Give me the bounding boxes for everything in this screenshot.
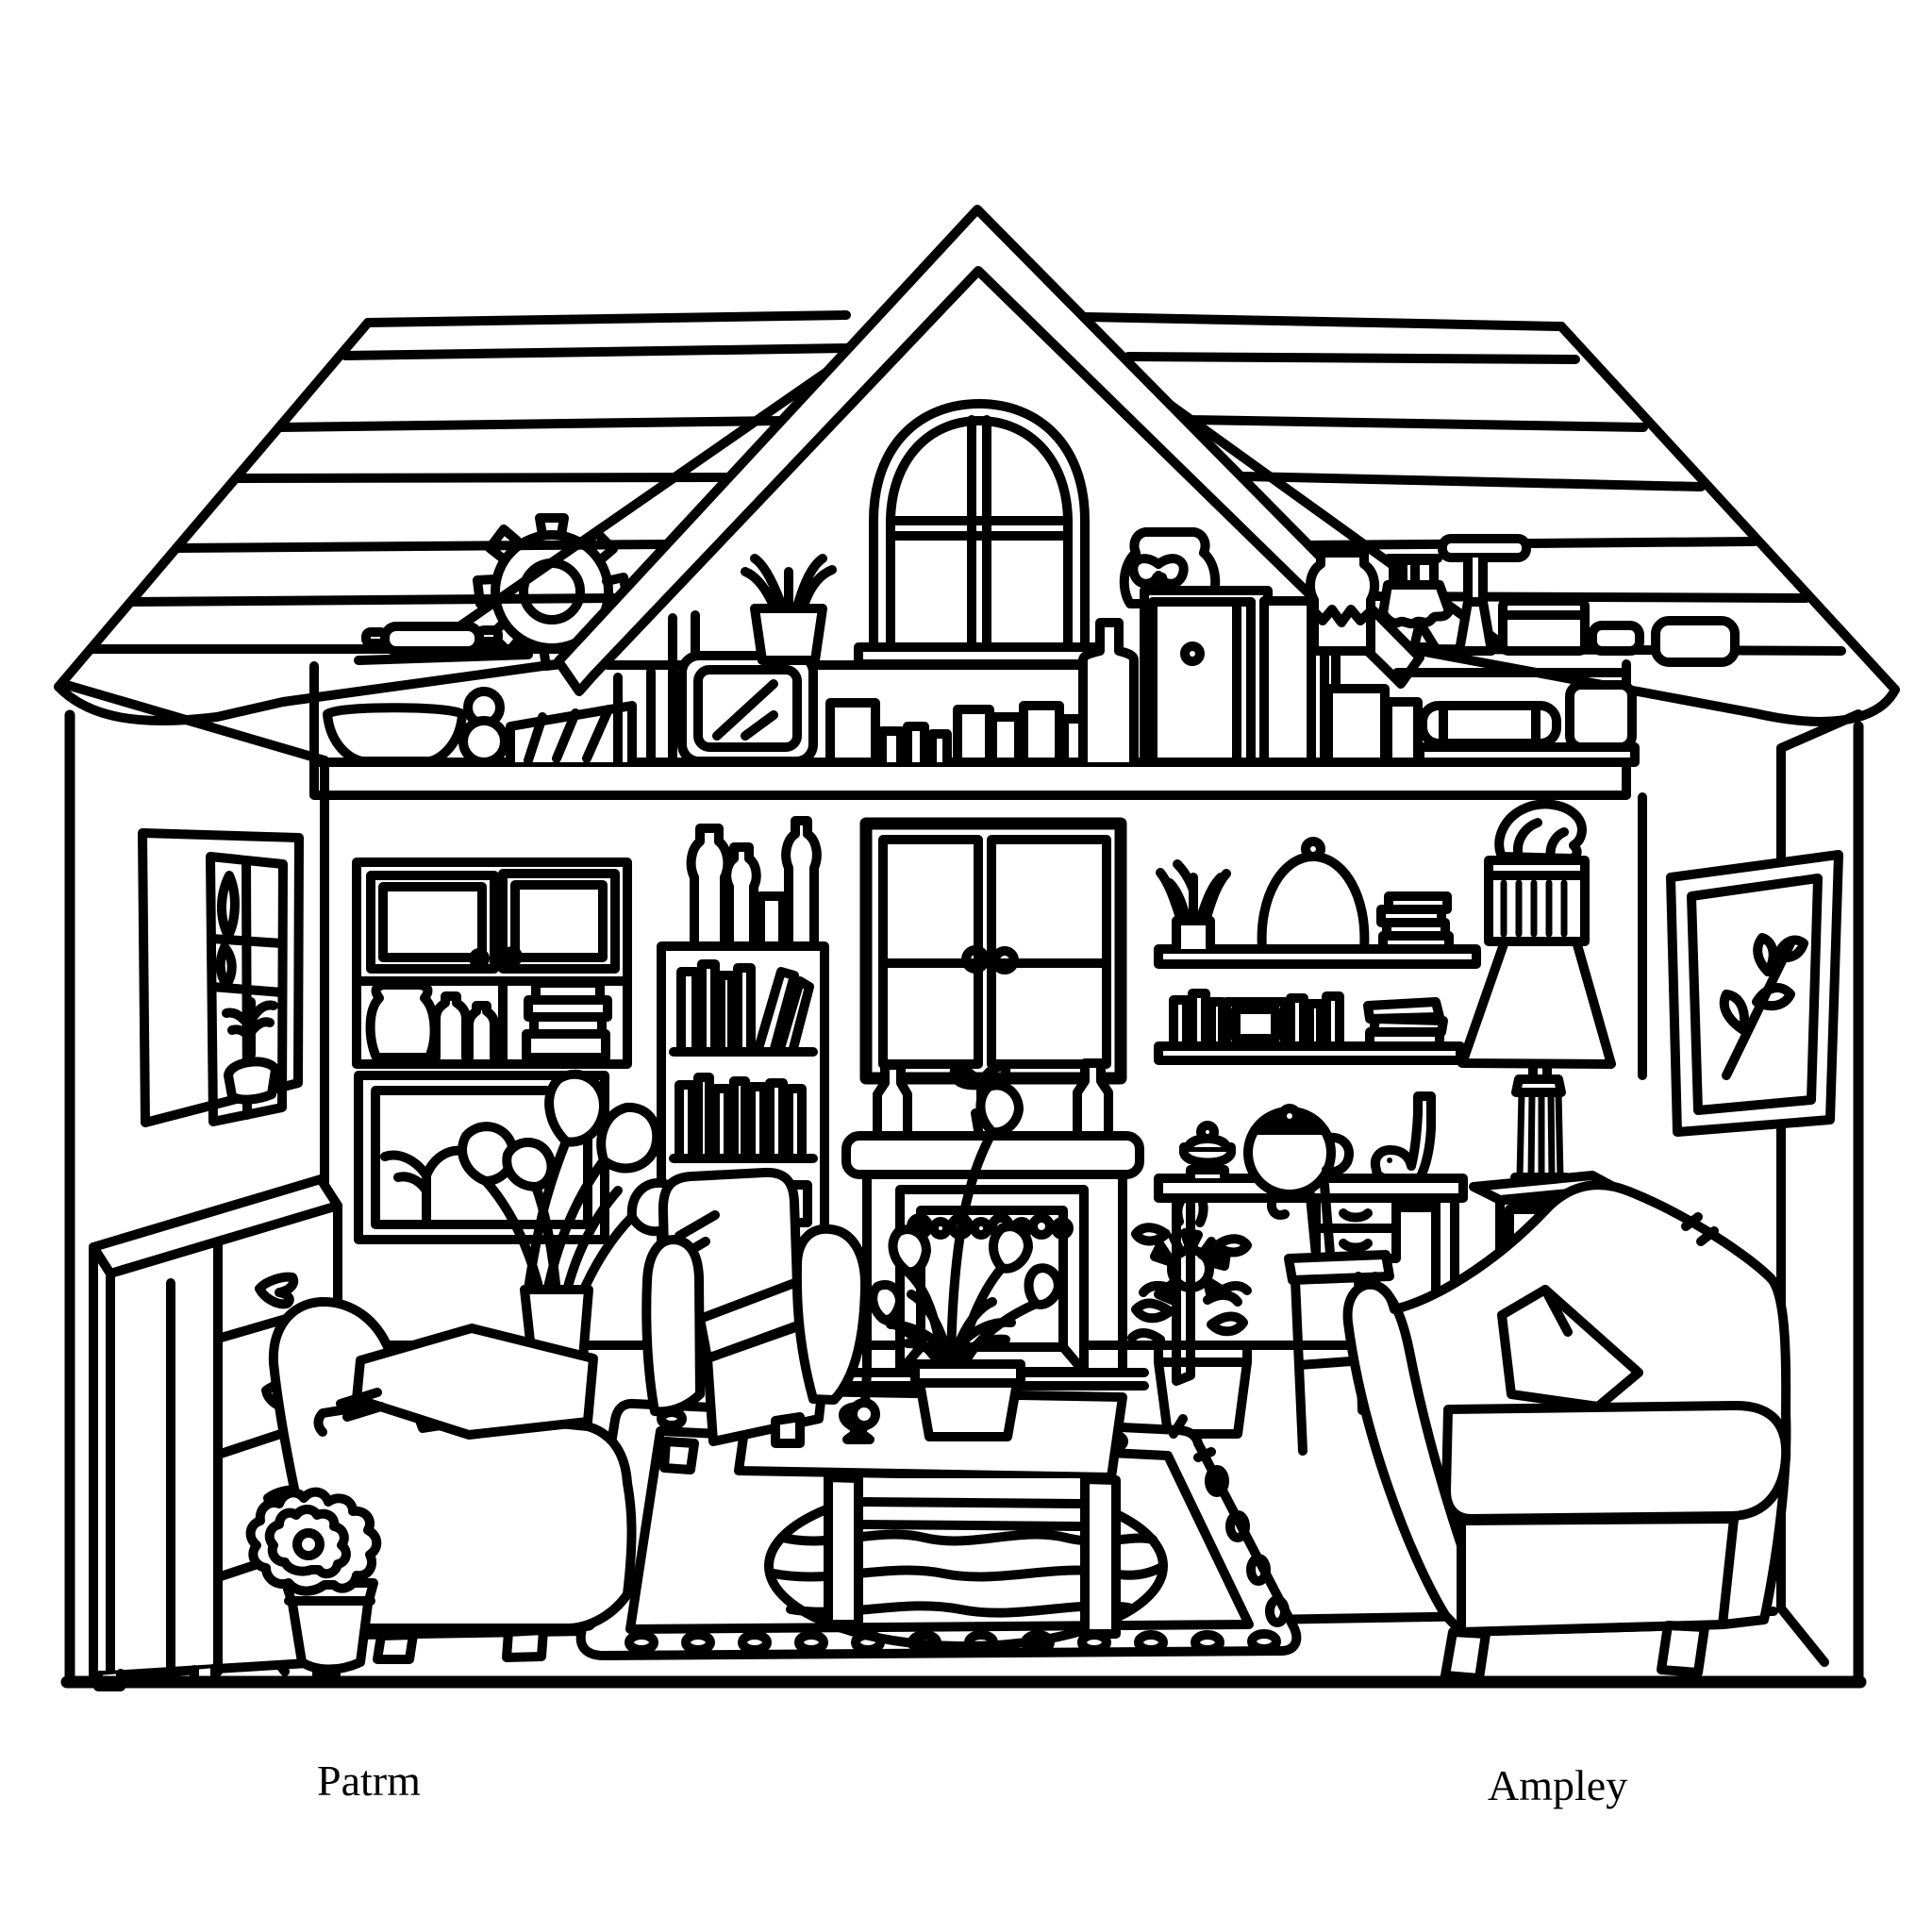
svg-text:Ampley: Ampley (1488, 1761, 1627, 1809)
svg-text:Patrm: Patrm (317, 1757, 421, 1805)
